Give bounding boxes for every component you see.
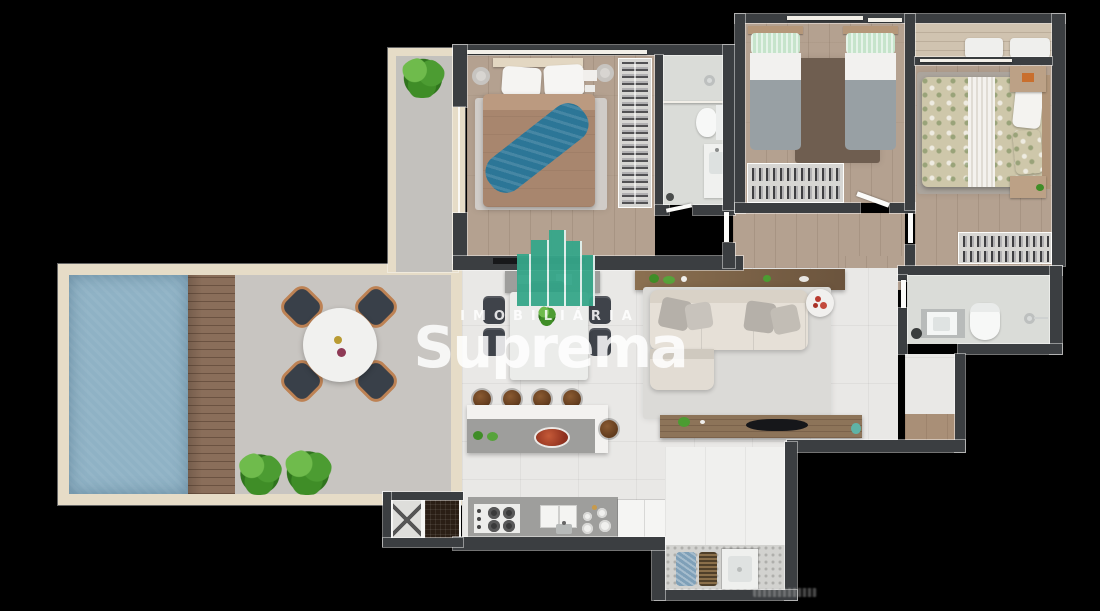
wall	[787, 440, 965, 452]
floor-plan-render: IMOBILIÁRIA Suprema	[0, 0, 1100, 611]
wall	[723, 45, 735, 210]
door-leaf	[908, 213, 913, 243]
window-wall	[453, 107, 465, 213]
clothes-basket-blue	[676, 552, 696, 586]
teal-vase	[851, 423, 861, 434]
door-leaf	[901, 280, 906, 308]
kitchen-counter	[468, 497, 618, 538]
elevator-shaft	[393, 500, 421, 540]
dining-chair	[483, 328, 505, 356]
wood-deck	[188, 275, 235, 494]
window-sill	[868, 18, 902, 22]
terrace	[58, 264, 462, 505]
table-decor	[334, 336, 342, 344]
bath-accessory	[666, 193, 674, 201]
wall	[905, 14, 915, 210]
render-credit-watermark	[753, 588, 817, 597]
red-flowers	[813, 303, 818, 308]
wall	[723, 243, 735, 268]
wall	[905, 245, 915, 266]
laundry-tub	[722, 549, 758, 589]
nightstand	[1010, 176, 1046, 198]
pool	[69, 275, 188, 494]
wall	[955, 354, 965, 452]
wall	[453, 537, 665, 550]
single-bed	[843, 26, 898, 150]
bed2-headboard	[1042, 75, 1050, 189]
bath2-trash	[911, 328, 922, 339]
bed2-pillow	[1012, 129, 1044, 175]
red-flowers	[815, 296, 821, 302]
dining-chair	[483, 296, 505, 324]
balcony-cushion	[965, 38, 1003, 58]
sofa-chaise	[650, 349, 714, 390]
dining-chair	[589, 296, 611, 324]
window-sill	[787, 16, 863, 20]
kitchen-sink	[556, 524, 572, 534]
wall	[898, 308, 907, 354]
suite-nightstand	[596, 64, 614, 82]
laundry-cabinets	[665, 447, 785, 545]
bedroom2-wardrobe-rack	[958, 232, 1052, 264]
toilet	[970, 303, 1000, 340]
bowl	[597, 508, 607, 518]
sliding-door-sill	[920, 59, 1012, 62]
bed-runner	[968, 77, 995, 187]
kitchen-island	[467, 405, 608, 453]
bath2-counter	[921, 309, 965, 338]
balcony-plant	[400, 58, 446, 98]
dining-chair	[589, 328, 611, 356]
terrace-plant	[237, 453, 283, 495]
wall	[383, 492, 463, 500]
nightstand	[1010, 66, 1046, 92]
wall	[735, 203, 860, 213]
foyer-floor	[905, 354, 955, 416]
twin-wardrobe-rack	[747, 163, 844, 203]
cooktop	[474, 504, 520, 533]
pantry	[425, 500, 459, 540]
dining-table	[510, 292, 588, 380]
fridge	[618, 500, 672, 539]
suite-pillow	[501, 66, 542, 98]
wall	[735, 14, 745, 213]
tv	[746, 419, 808, 431]
wall	[785, 442, 797, 600]
bar-stool	[600, 420, 618, 438]
sofa-pillow	[769, 303, 801, 335]
food-platter	[536, 429, 568, 446]
island-plant	[487, 432, 498, 441]
toilet	[696, 108, 717, 137]
wall	[898, 266, 1062, 275]
wall	[453, 45, 467, 107]
table-decor	[337, 348, 346, 357]
side-balcony	[388, 48, 458, 272]
window-sill	[467, 50, 647, 54]
shower-arm	[1034, 317, 1048, 319]
suite-wardrobe-rack	[618, 58, 652, 208]
bowl	[599, 520, 611, 532]
single-bed	[748, 26, 803, 150]
green-pillow	[751, 33, 800, 54]
wall	[1050, 266, 1062, 354]
wall	[958, 344, 1062, 354]
wall-tv	[493, 258, 585, 264]
clothes-basket-woven	[699, 552, 717, 586]
dish	[583, 512, 592, 521]
door-leaf	[724, 212, 729, 242]
suite-pillow	[543, 64, 585, 97]
table-plant	[538, 306, 556, 326]
foyer-wood-mat	[905, 414, 955, 442]
bedside-books	[583, 70, 597, 81]
terrace-plant	[283, 450, 333, 495]
wall	[1052, 14, 1065, 266]
round-table	[303, 308, 377, 382]
bench-plant	[678, 417, 690, 427]
green-pillow	[846, 33, 895, 54]
shower-head	[704, 75, 715, 86]
suite-nightstand	[472, 67, 490, 85]
toilet-tank	[716, 105, 723, 140]
dish	[582, 523, 593, 534]
wall	[655, 55, 663, 205]
red-flowers	[820, 302, 827, 309]
balcony-cushion	[1010, 38, 1050, 58]
shower-glass	[663, 101, 723, 103]
island-plant	[473, 431, 483, 440]
wall	[383, 538, 463, 547]
tv-bench	[660, 415, 862, 438]
sofa-pillow	[684, 301, 714, 331]
